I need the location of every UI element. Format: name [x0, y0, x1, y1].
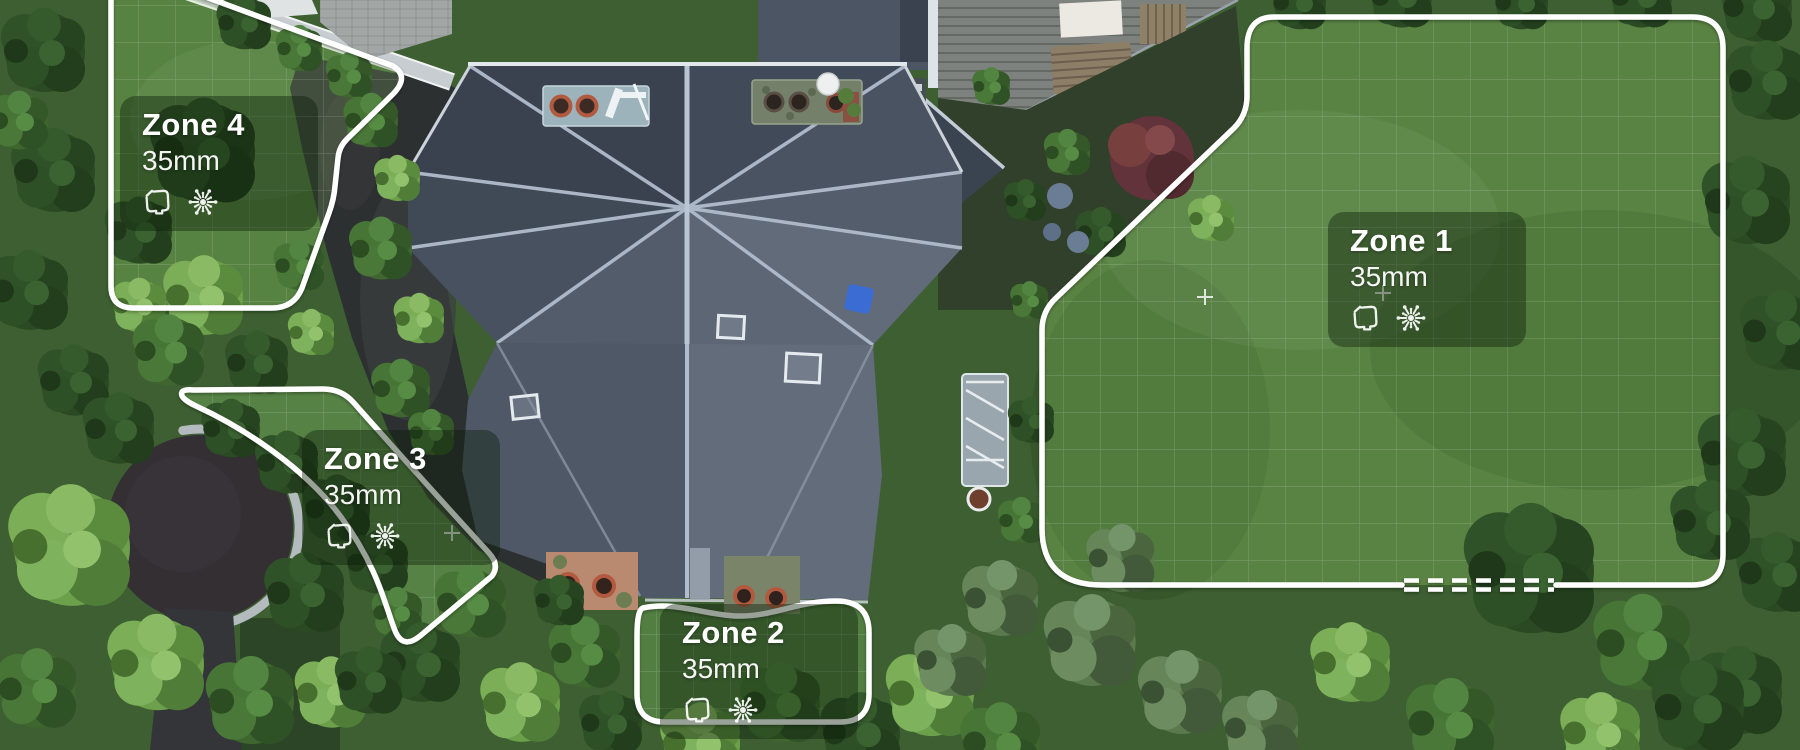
zone-cutting-height: 35mm: [142, 146, 296, 177]
mowing-pattern-icon: [1396, 303, 1426, 333]
mowing-pattern-icon: [728, 695, 758, 725]
mowing-pattern-icon: [370, 521, 400, 551]
blue-tarp: [844, 284, 875, 315]
mower-map-view: Zone 1 35mm Zone 2 35mm Zone 3 35mm Zone…: [0, 0, 1800, 750]
mowing-pattern-icon: [188, 187, 218, 217]
zone-cutting-height: 35mm: [682, 654, 836, 685]
zone-cutting-height: 35mm: [324, 480, 478, 511]
zone-name: Zone 4: [142, 108, 296, 143]
zone-name: Zone 1: [1350, 224, 1504, 259]
zone-card-icons: [142, 187, 296, 217]
plant-pot: [968, 488, 990, 510]
work-area-icon: [324, 521, 354, 551]
satellite-dish: [817, 73, 839, 95]
zone-card-icons: [682, 695, 836, 725]
chimney-platform-2: [752, 73, 862, 124]
zone-2-card[interactable]: Zone 2 35mm: [660, 604, 858, 739]
deck-mat: [1059, 0, 1123, 37]
zone-card-icons: [1350, 303, 1504, 333]
zone-3-card[interactable]: Zone 3 35mm: [302, 430, 500, 565]
work-area-icon: [1350, 303, 1380, 333]
work-area-icon: [682, 695, 712, 725]
zone-1-card[interactable]: Zone 1 35mm: [1328, 212, 1526, 347]
zone-cutting-height: 35mm: [1350, 262, 1504, 293]
zone-name: Zone 3: [324, 442, 478, 477]
chimney-platform: [543, 84, 649, 126]
zone-card-icons: [324, 521, 478, 551]
zone-4-card[interactable]: Zone 4 35mm: [120, 96, 318, 231]
zone-name: Zone 2: [682, 616, 836, 651]
work-area-icon: [142, 187, 172, 217]
